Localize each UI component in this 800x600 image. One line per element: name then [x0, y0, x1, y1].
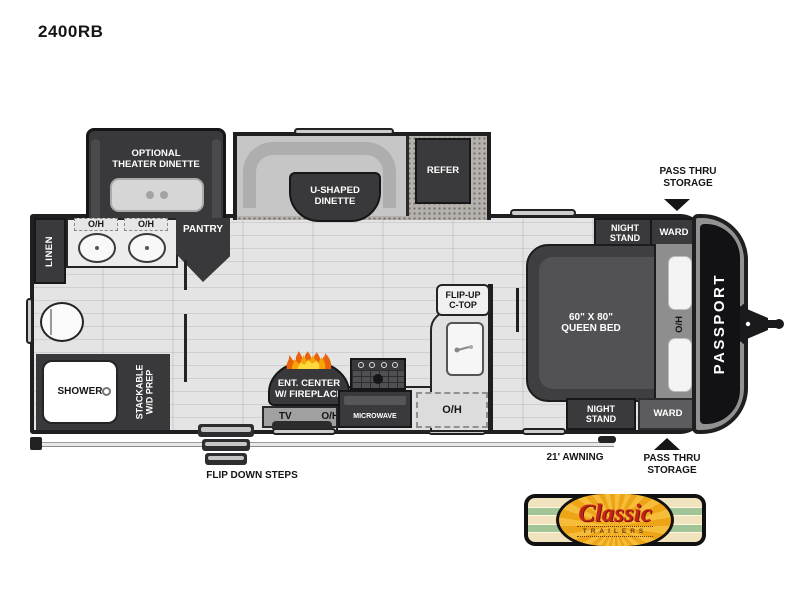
top-wall-window — [510, 209, 576, 217]
u-shaped-dinette-table: U-SHAPED DINETTE — [289, 172, 381, 222]
theater-dinette-label: OPTIONAL THEATER DINETTE — [89, 149, 223, 171]
toilet — [40, 302, 84, 342]
shower-drain-icon — [102, 387, 111, 396]
bottom-wall-window — [522, 428, 566, 435]
refer-label: REFER — [427, 166, 459, 177]
awning-end-cap — [598, 436, 616, 443]
bedroom-wall — [516, 288, 519, 332]
refrigerator: REFER — [415, 138, 471, 204]
queen-bed-label: 60" X 80" QUEEN BED — [561, 312, 620, 335]
stove — [350, 358, 406, 390]
bed-overhead: O/H — [668, 306, 692, 342]
u-dinette-label: U-SHAPED DINETTE — [310, 186, 360, 208]
ent-center-label: ENT. CENTER W/ FIREPLACE — [275, 379, 343, 404]
awning-label: 21' AWNING — [530, 452, 620, 464]
passport-brand-label: PASSPORT — [711, 273, 728, 374]
flip-up-countertop: FLIP-UP C-TOP — [436, 284, 490, 316]
logo-badge: Classic TRAILERS — [556, 494, 674, 546]
vanity-overhead-left: O/H — [74, 218, 118, 231]
linen-cabinet: LINEN — [34, 218, 66, 284]
arrow-down-icon — [664, 199, 690, 211]
arrow-up-icon — [654, 438, 680, 450]
pillow — [668, 338, 692, 392]
hitch-icon — [738, 298, 788, 350]
page-title: 2400RB — [38, 22, 103, 42]
bottom-wall-window — [272, 428, 336, 435]
bed-overhead-label: O/H — [675, 316, 686, 333]
faucet-icon — [453, 342, 477, 356]
shower-label: SHOWER — [58, 386, 103, 398]
shower-washer-block: SHOWER STACKABLE W/D PREP — [36, 354, 170, 430]
steps-label: FLIP DOWN STEPS — [170, 470, 334, 482]
pillow — [668, 256, 692, 310]
linen-label: LINEN — [45, 236, 56, 267]
queen-bed: 60" X 80" QUEEN BED — [526, 244, 656, 402]
kitchen-sink — [446, 322, 484, 376]
flip-up-ctop-label: FLIP-UP C-TOP — [446, 290, 481, 311]
night-stand-bottom: NIGHT STAND — [566, 398, 636, 430]
microwave: MICROWAVE — [338, 390, 412, 428]
awning-end-cap — [30, 437, 42, 450]
pass-thru-storage-bottom-label: PASS THRU STORAGE — [612, 453, 732, 476]
logo-name: Classic — [578, 503, 652, 524]
kitchen-overhead: O/H — [416, 392, 488, 428]
kitchen-overhead-label: O/H — [442, 404, 462, 417]
slideout-window — [294, 128, 394, 135]
night-stand-top-label: NIGHT STAND — [610, 223, 640, 244]
entry-steps — [198, 424, 254, 466]
bathroom-wall — [184, 314, 187, 382]
tv-unit — [272, 421, 332, 429]
passport-brand-band: PASSPORT — [700, 224, 740, 424]
fireplace-flames-icon — [284, 351, 334, 369]
pantry-label: PANTRY — [176, 224, 230, 236]
left-wall-window — [26, 298, 33, 344]
ward-top-label: WARD — [659, 228, 688, 239]
bathroom-wall — [184, 260, 187, 290]
night-stand-bottom-label: NIGHT STAND — [586, 404, 616, 425]
pass-thru-storage-top-label: PASS THRU STORAGE — [628, 166, 748, 189]
vanity-sink — [128, 233, 166, 263]
wardrobe-bottom: WARD — [638, 398, 698, 430]
awning-rail — [32, 440, 614, 449]
brand-logo: Classic TRAILERS — [524, 494, 706, 546]
vanity-sink — [78, 233, 116, 263]
vanity-overhead-right: O/H — [124, 218, 168, 231]
floorplan-page: 2400RB OPTIONAL THEATER DINETTE PASSPORT… — [0, 0, 800, 600]
logo-sub: TRAILERS — [577, 526, 654, 537]
ward-bottom-label: WARD — [653, 409, 682, 420]
theater-dinette-table — [110, 178, 204, 212]
washer-dryer-prep: STACKABLE W/D PREP — [120, 354, 170, 430]
shower: SHOWER — [42, 360, 118, 424]
wd-prep-label: STACKABLE W/D PREP — [135, 354, 156, 430]
microwave-label: MICROWAVE — [340, 413, 410, 426]
